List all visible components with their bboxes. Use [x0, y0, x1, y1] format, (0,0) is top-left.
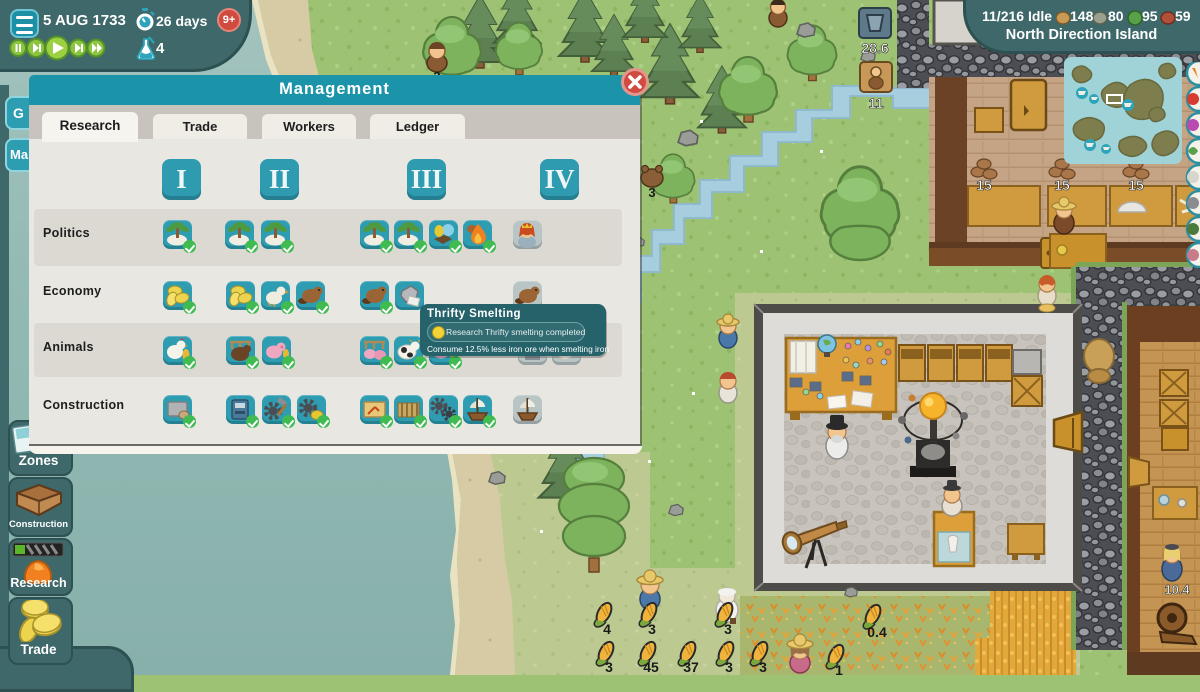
svg-text:0.4: 0.4 — [867, 624, 887, 640]
svg-text:37: 37 — [683, 659, 699, 675]
svg-text:3: 3 — [648, 621, 656, 637]
svg-text:3: 3 — [648, 185, 655, 200]
svg-text:3: 3 — [605, 659, 613, 675]
svg-text:15: 15 — [1054, 177, 1070, 193]
svg-text:3: 3 — [724, 621, 732, 637]
svg-text:3: 3 — [725, 659, 733, 675]
svg-text:45: 45 — [643, 659, 659, 675]
svg-text:28.6: 28.6 — [861, 40, 888, 56]
svg-text:10.4: 10.4 — [1164, 582, 1190, 597]
svg-text:4: 4 — [603, 621, 611, 637]
svg-text:15: 15 — [976, 177, 992, 193]
svg-text:3: 3 — [759, 659, 767, 675]
svg-text:15: 15 — [1128, 177, 1144, 193]
svg-text:1: 1 — [835, 662, 843, 675]
svg-text:11: 11 — [869, 95, 884, 111]
